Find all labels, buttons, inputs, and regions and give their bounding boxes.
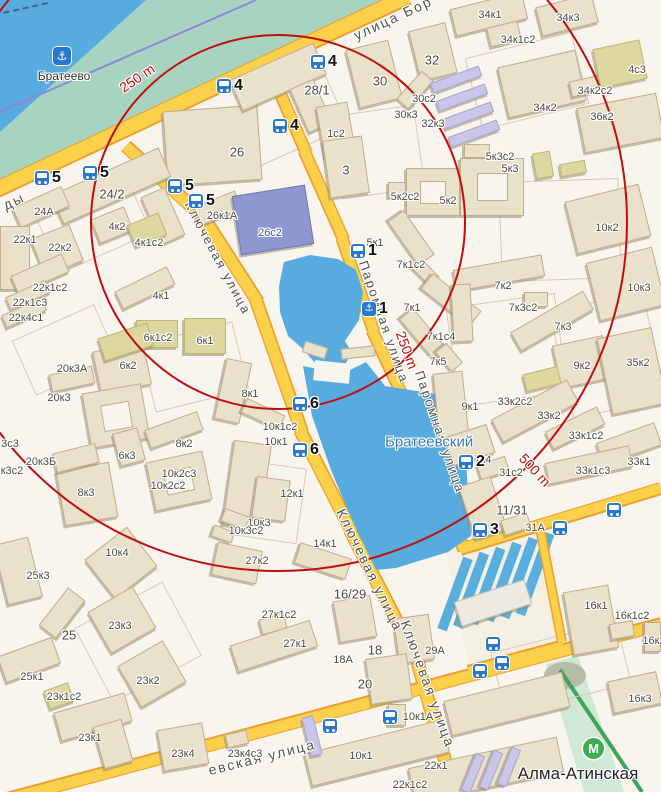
- building-label: 22к1: [424, 760, 447, 772]
- building-label: 14к1: [313, 538, 336, 550]
- building-label: 3с3: [1, 438, 19, 450]
- building-label: 4к1: [152, 290, 169, 302]
- bus-stop-icon[interactable]: [293, 443, 307, 457]
- building-label: 31с2: [499, 467, 523, 479]
- building-label: 9к1: [461, 401, 478, 413]
- building: [563, 584, 619, 655]
- building-label: 30с2: [412, 93, 436, 105]
- bus-stop-icon[interactable]: [473, 523, 487, 537]
- building-label: 12к1: [280, 488, 303, 500]
- building-label: 23к1: [78, 732, 101, 744]
- building-label: 25к3: [26, 570, 49, 582]
- bus-stop-icon[interactable]: [168, 179, 182, 193]
- building-label: 6к1с2: [144, 332, 173, 344]
- building-label: 4к1с2: [135, 237, 164, 249]
- building-label: 10к1с2: [263, 421, 298, 433]
- building-label: 34к2с2: [578, 85, 613, 97]
- building-label: 24А: [34, 206, 54, 218]
- building-label: 7к1: [403, 302, 420, 314]
- pier-stop-icon[interactable]: ⚓: [362, 302, 376, 316]
- bus-stop-icon[interactable]: [273, 119, 287, 133]
- building-label: 5к2с2: [391, 191, 420, 203]
- building-label: 26: [230, 145, 244, 160]
- building-label: 4к2: [108, 221, 125, 233]
- building-label: 32: [425, 53, 439, 68]
- building-label: 8к1: [241, 388, 258, 400]
- building-label: 7к3: [554, 321, 571, 333]
- building-label: 27к1с2: [262, 609, 297, 621]
- stop-number-label: 6: [310, 397, 319, 411]
- building-label: 35к2: [626, 357, 649, 369]
- building-label: 10к2с2: [151, 480, 186, 492]
- bus-stop-icon[interactable]: [553, 521, 567, 535]
- bus-stop-icon[interactable]: [293, 397, 307, 411]
- building-label: 7к1с4: [427, 331, 456, 343]
- stop-number-label: 3: [490, 523, 499, 537]
- building-label: 22к1с3: [13, 297, 48, 309]
- building-label: 23к4: [171, 748, 194, 760]
- stop-number-label: 5: [185, 179, 194, 193]
- bus-stop-icon[interactable]: [459, 455, 473, 469]
- building-label: 34к2: [533, 102, 556, 114]
- building-label: 29А: [425, 645, 445, 657]
- building-label: 27к1: [283, 638, 306, 650]
- building-label: 34к1: [478, 9, 501, 21]
- stop-number-label: 5: [100, 166, 109, 180]
- building-label: 10к1А: [403, 711, 434, 723]
- building-label: 7к2: [494, 280, 511, 292]
- map-canvas[interactable]: улица БордыКлючевая улицаКлючевая улицаК…: [0, 0, 661, 792]
- building-label: 10к2с3: [162, 468, 197, 480]
- building-label: 10к2: [595, 222, 618, 234]
- building-label: 20к3: [47, 392, 70, 404]
- building-label: 22к1с2: [33, 282, 68, 294]
- bus-stop-icon[interactable]: [473, 664, 487, 678]
- building-label: 8к3: [77, 487, 94, 499]
- building-label: 26с2: [258, 227, 282, 239]
- building-label: 33к2: [537, 410, 560, 422]
- building-label: 23к3: [108, 620, 131, 632]
- building-label: 4с3: [628, 64, 646, 76]
- building-label: 6к1: [196, 335, 213, 347]
- stop-number-label: 4: [290, 119, 299, 133]
- bus-stop-icon[interactable]: [311, 55, 325, 69]
- building-label: 9к2: [573, 360, 590, 372]
- building-label: 16/29: [334, 587, 367, 602]
- building: [157, 722, 210, 771]
- bus-stop-icon[interactable]: [383, 710, 397, 724]
- bus-stop-icon[interactable]: [217, 79, 231, 93]
- building-label: 1с2: [327, 128, 345, 140]
- building-label: 20к3А: [57, 363, 88, 375]
- bus-stop-icon[interactable]: [486, 637, 500, 651]
- building-label: 10к4: [105, 547, 128, 559]
- building-label: 34к1с2: [501, 34, 536, 46]
- stop-number-label: 2: [476, 455, 485, 469]
- building-label: 22к2: [48, 242, 71, 254]
- pier-label: Братеево: [38, 69, 91, 83]
- building-label: 22к1с2: [393, 779, 428, 791]
- building-label: 7к5: [429, 356, 446, 368]
- building-label: 10к1: [264, 436, 287, 448]
- building-label: 24/2: [99, 187, 124, 202]
- building-label: 23к1с2: [47, 691, 82, 703]
- building-label: 18: [368, 643, 382, 658]
- building-label: 7к3с2: [509, 302, 538, 314]
- building: [225, 730, 249, 748]
- building-label: 3: [342, 163, 349, 178]
- building-label: 20: [358, 677, 372, 692]
- building-label: 30: [373, 74, 387, 89]
- pier-icon[interactable]: ⚓: [53, 47, 71, 65]
- building-label: 6к2: [119, 360, 136, 372]
- building-label: 5к3с2: [486, 151, 515, 163]
- bus-stop-icon[interactable]: [189, 194, 203, 208]
- building-label: 5к2: [439, 195, 456, 207]
- stop-number-label: 1: [368, 244, 377, 258]
- building-label: 11/31: [496, 503, 528, 518]
- bus-stop-icon[interactable]: [35, 171, 49, 185]
- building-label: 16к1с2: [615, 610, 650, 622]
- building-label: 25: [62, 628, 76, 643]
- building-label: 16к1: [584, 600, 607, 612]
- metro-icon[interactable]: М: [583, 738, 604, 759]
- building-label: 10к3с2: [229, 525, 264, 537]
- stop-number-label: 5: [52, 171, 61, 185]
- stop-number-label: 1: [379, 302, 388, 316]
- building-label: 27к2: [245, 555, 268, 567]
- bus-stop-icon[interactable]: [351, 244, 365, 258]
- building-label: 36к2: [590, 111, 613, 123]
- bus-stop-icon[interactable]: [495, 656, 509, 670]
- building-label: 33к2с2: [498, 396, 533, 408]
- building-label: 33к1с2: [569, 430, 604, 442]
- stop-number-label: 4: [234, 79, 243, 93]
- building-label: 23к4с3: [228, 748, 263, 760]
- building: [93, 719, 134, 770]
- building-label: 22к4с1: [9, 312, 44, 324]
- building-label: 10к1: [349, 750, 372, 762]
- building-label: 16к2: [642, 635, 661, 647]
- building-label: 25к1: [20, 671, 43, 683]
- building-label: 8к2: [175, 438, 192, 450]
- building-label: 33к1: [627, 456, 650, 468]
- bus-stop-icon[interactable]: [607, 503, 621, 517]
- building-label: 20к3Б: [26, 456, 56, 468]
- bus-stop-icon[interactable]: [323, 719, 337, 733]
- building-label: 26к1А: [207, 210, 238, 222]
- metro-station-label: Алма-Атинская: [518, 764, 639, 784]
- building-label: 31А: [525, 522, 545, 534]
- building-label: 10к3: [627, 282, 650, 294]
- building-label: 7к1с2: [397, 259, 426, 271]
- building-label: 18А: [333, 654, 353, 666]
- bus-stop-icon[interactable]: [83, 166, 97, 180]
- building-label: 6к3: [118, 450, 135, 462]
- building-label: 34к3: [556, 12, 579, 24]
- stop-number-label: 6: [310, 443, 319, 457]
- building-label: 28/1: [304, 83, 329, 98]
- building-label: 22к1: [13, 234, 36, 246]
- building-label: 33к1с3: [576, 465, 611, 477]
- building-label: к3с2: [1, 465, 24, 477]
- building-label: 23к2: [136, 675, 159, 687]
- building-label: 32к3: [421, 118, 444, 130]
- pond-label-line1: Братеевский: [385, 433, 473, 452]
- stop-number-label: 4: [328, 55, 337, 69]
- building-label: 30к3: [394, 109, 417, 121]
- building: [333, 595, 378, 643]
- building-label: 5к3: [501, 163, 518, 175]
- building-label: 16к3: [628, 693, 651, 705]
- stop-number-label: 5: [206, 194, 215, 208]
